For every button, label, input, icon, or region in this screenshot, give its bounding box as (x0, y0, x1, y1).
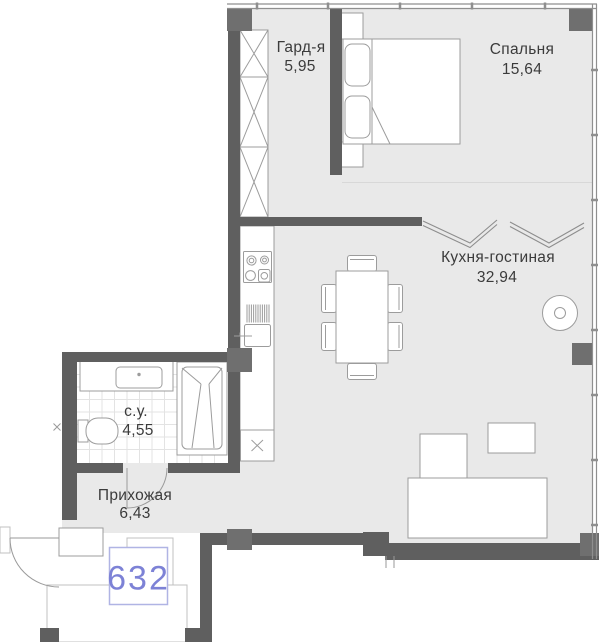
column-hall (227, 529, 252, 550)
vanity-sink (116, 367, 162, 388)
chair-bottom (348, 364, 377, 380)
hallway-label: Прихожая (98, 487, 172, 504)
bathtub (177, 362, 227, 455)
bathroom-area: 4,55 (122, 422, 153, 439)
coffee-table (488, 423, 535, 453)
wall-bath-bottom-left (77, 463, 123, 473)
foot-block-mid (185, 628, 212, 642)
wardrobe-area: 5,95 (284, 58, 315, 75)
vanity-faucet (137, 373, 140, 376)
column-top-left (227, 8, 252, 31)
foot-block-left (40, 628, 59, 642)
wall-mid-horizontal (228, 217, 422, 226)
chair-left-1 (322, 285, 337, 313)
kitchen-living-area: 32,94 (477, 269, 517, 286)
plumbing-riser-mark (54, 424, 61, 431)
wall-hall-vertical (200, 533, 212, 642)
floor-plan-drawing: Гард-я 5,95 Спальня 15,64 Кухня-гостиная… (0, 0, 600, 642)
wall-wardrobe-divider (330, 8, 342, 175)
entry-door (10, 538, 59, 587)
kitchen-living-label: Кухня-гостиная (441, 249, 555, 266)
sofa-chaise (420, 434, 467, 480)
toilet-bowl (86, 418, 118, 444)
wardrobe-label: Гард-я (277, 39, 326, 56)
unit-number: 632 (107, 560, 170, 598)
window-wall-top (227, 4, 597, 9)
unit-badge: 632 (107, 548, 170, 605)
window-wall-right (593, 4, 597, 559)
wardrobe-shelving (240, 30, 268, 217)
wall-bottom (385, 543, 599, 560)
entry-cabinet (59, 528, 103, 556)
nightstand-bottom (339, 142, 363, 167)
wall-bath-top (62, 352, 240, 362)
sofa-base (408, 478, 547, 538)
column-right-mid (572, 343, 593, 365)
chair-left-2 (322, 323, 337, 351)
wall-hall-horizontal (200, 533, 365, 545)
column-top-right (569, 8, 592, 31)
chair-right-1 (388, 285, 403, 313)
chair-top (348, 256, 377, 272)
column-kitchen (227, 348, 252, 372)
bedroom-label: Спальня (490, 41, 554, 58)
wall-bath-bottom-right (168, 463, 240, 473)
wall-bath-left (62, 352, 77, 520)
nightstand-top (339, 13, 363, 39)
wall-bath-right (228, 372, 240, 473)
pillow-2 (345, 96, 370, 138)
pillow-1 (345, 44, 370, 86)
hallway-area: 6,43 (119, 505, 150, 522)
bedroom-area: 15,64 (502, 61, 542, 78)
neighbor-sliver (0, 527, 10, 553)
kitchen (240, 226, 274, 461)
entry-door-swing (10, 538, 59, 587)
dining-table (336, 271, 388, 363)
wall-left (228, 8, 240, 372)
floor-lamp (543, 296, 578, 331)
bathroom-label: с.у. (124, 403, 148, 420)
chair-right-2 (388, 323, 403, 351)
floor-plan: Гард-я 5,95 Спальня 15,64 Кухня-гостиная… (0, 0, 600, 642)
